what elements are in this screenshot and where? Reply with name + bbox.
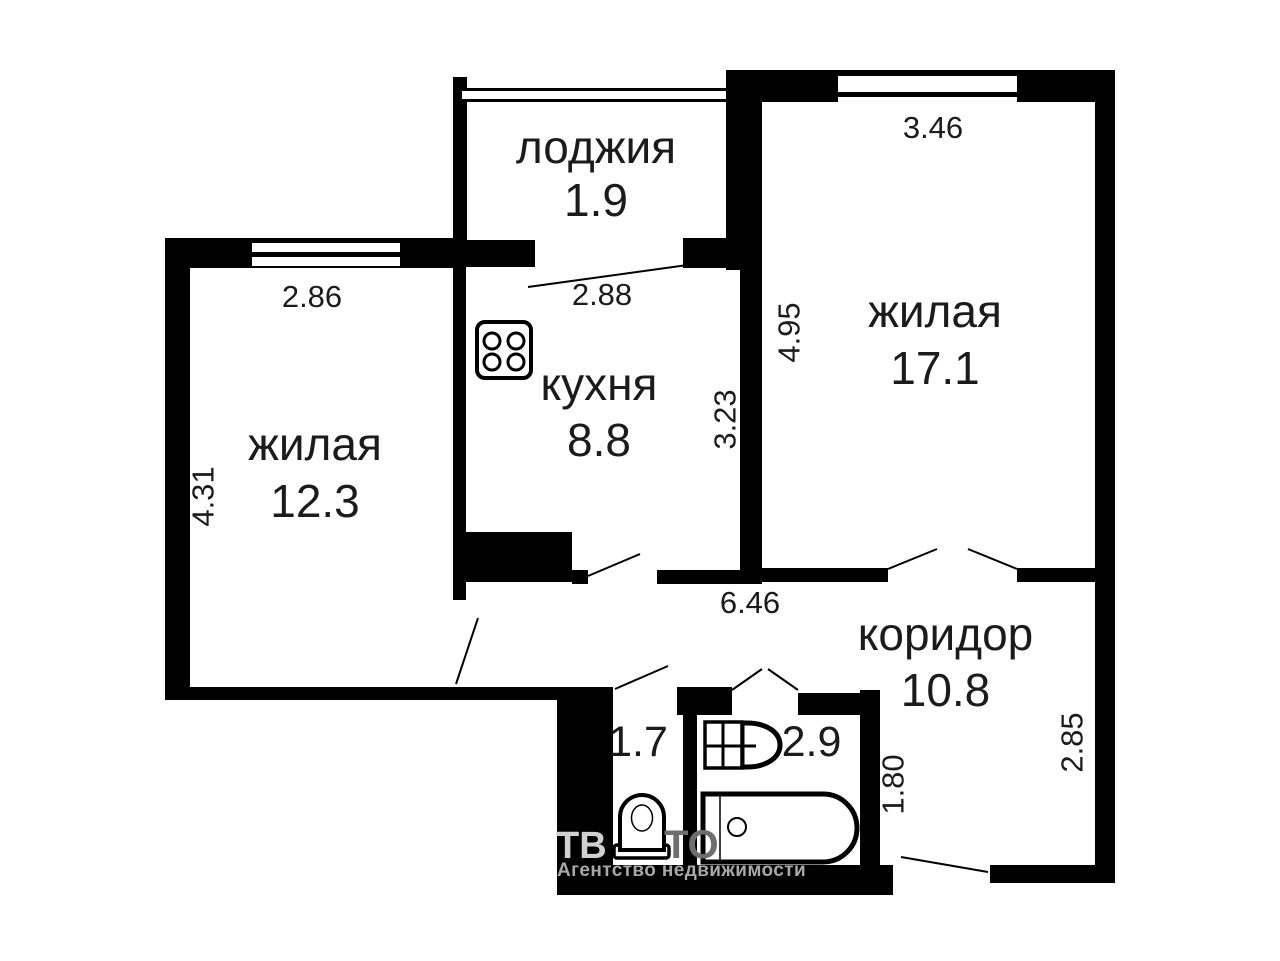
watermark-brand-right: ТО — [664, 825, 719, 865]
room-label-loggia: лоджия — [455, 124, 737, 170]
livingleft-door-mark — [456, 618, 478, 684]
wc-door-mark — [615, 666, 668, 689]
room-area-living-right: 17.1 — [780, 345, 1090, 391]
room-area-kitchen: 8.8 — [468, 417, 730, 463]
dimension-living-right-depth: 4.95 — [774, 278, 805, 388]
bathtub-icon — [703, 794, 857, 862]
dimension-living-right-width: 3.46 — [833, 112, 1033, 143]
dimension-bathroom-width: 1.80 — [878, 730, 909, 840]
bath-door-mark — [732, 669, 762, 690]
entrance-door-leader — [901, 857, 988, 872]
watermark-tagline: Агентство недвижимости — [557, 861, 806, 880]
livingright-door-mark — [968, 549, 1017, 569]
room-label-living-right: жилая — [780, 288, 1090, 334]
livingright-door-mark — [888, 549, 937, 569]
toilet-icon — [614, 795, 669, 858]
room-label-kitchen: кухня — [468, 361, 730, 407]
room-area-loggia: 1.9 — [455, 177, 737, 223]
room-area-wc: 1.7 — [598, 721, 678, 764]
dimension-loggia-width: 2.88 — [502, 279, 702, 310]
room-area-bathroom: 2.9 — [769, 721, 854, 764]
dimension-corridor-length: 6.46 — [650, 587, 850, 618]
dimension-living-left-depth: 4.31 — [188, 442, 219, 552]
floor-plan: лоджия 1.9 жилая 17.1 кухня 8.8 жилая 12… — [0, 0, 1280, 961]
dimension-living-left-width: 2.86 — [212, 281, 412, 312]
dimension-kitchen-depth: 3.23 — [710, 365, 741, 475]
kitchen-door-mark — [588, 554, 640, 576]
room-area-corridor: 10.8 — [793, 667, 1098, 713]
dimension-corridor-depth: 2.85 — [1057, 688, 1088, 798]
